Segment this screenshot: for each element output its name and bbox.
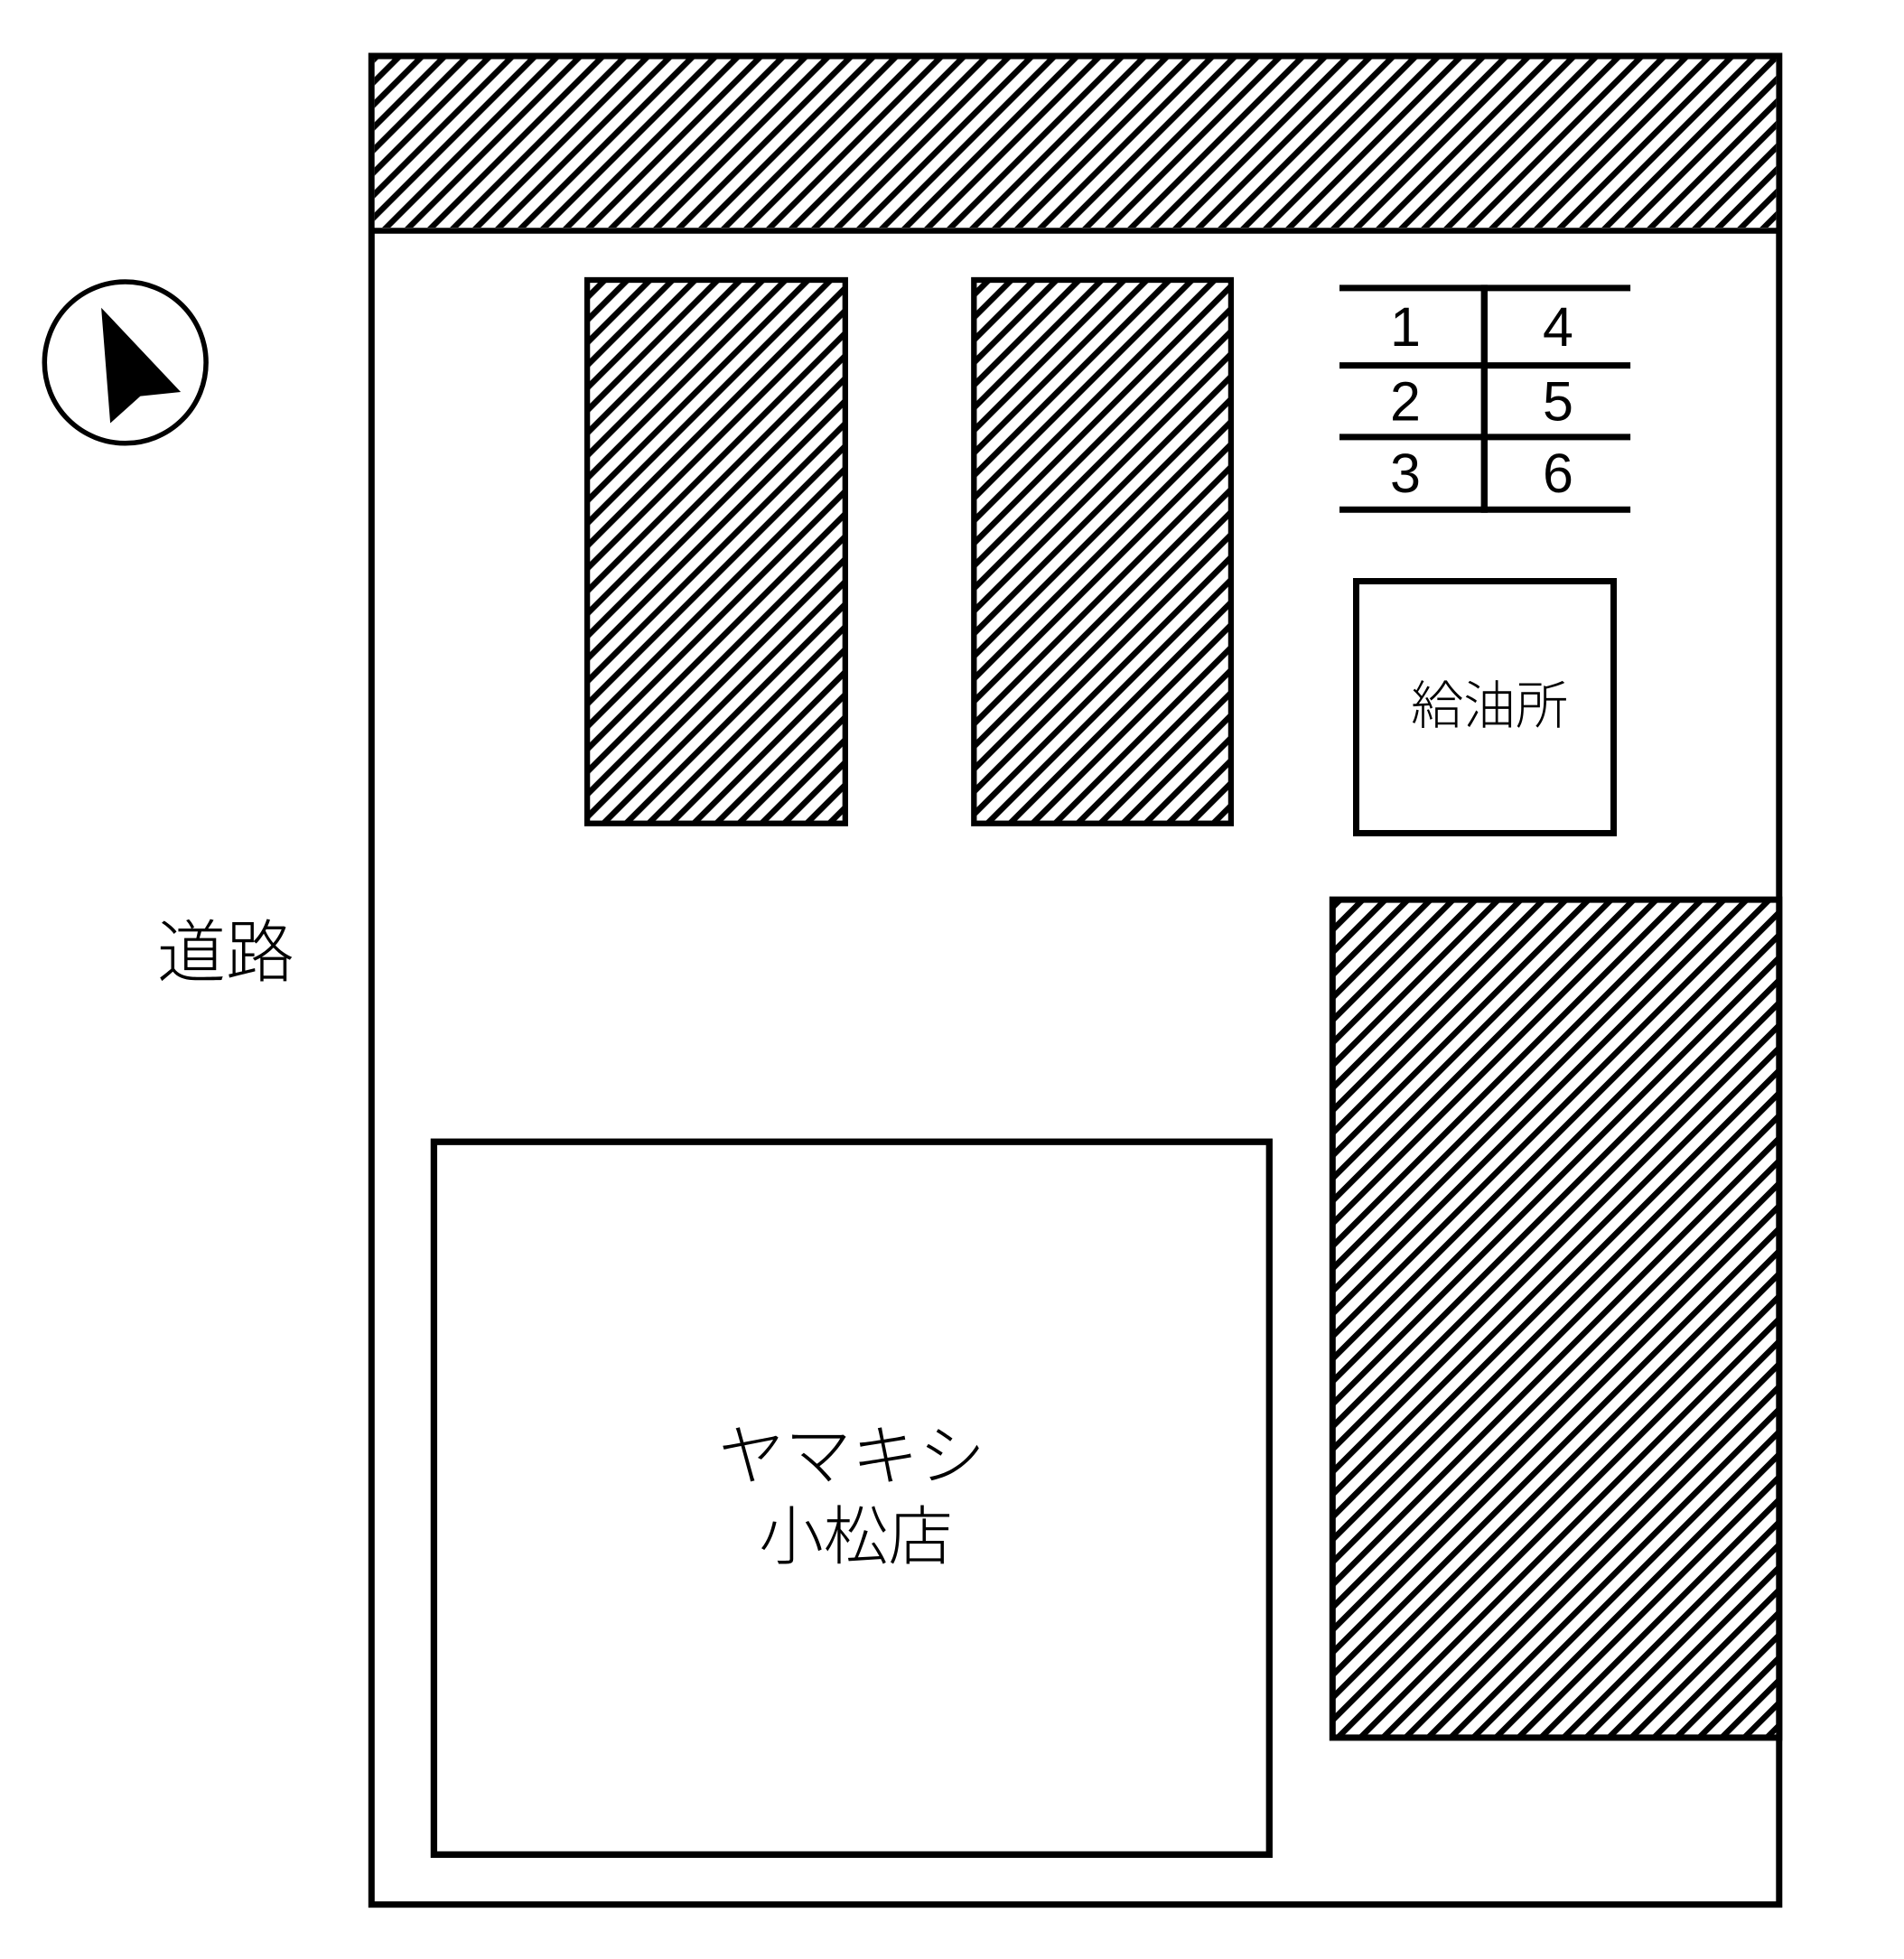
svg-text:2: 2 bbox=[1390, 370, 1421, 432]
svg-text:3: 3 bbox=[1390, 443, 1421, 504]
svg-text:5: 5 bbox=[1543, 370, 1573, 432]
svg-text:1: 1 bbox=[1390, 296, 1421, 358]
svg-text:6: 6 bbox=[1543, 443, 1573, 504]
svg-text:4: 4 bbox=[1543, 296, 1573, 358]
